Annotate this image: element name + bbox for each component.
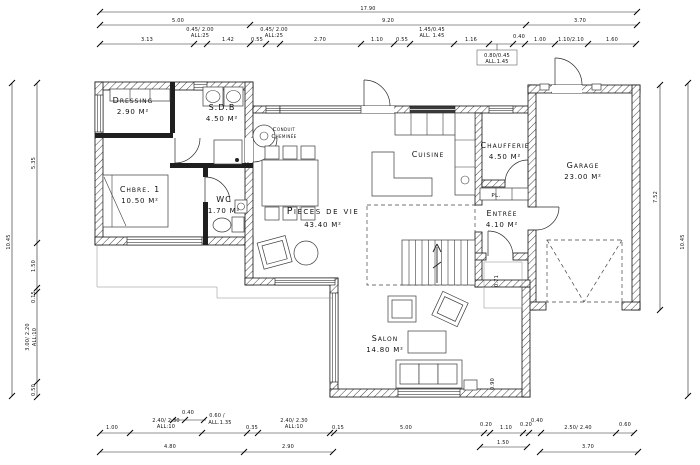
floor-plan-canvas: 17.905.009.203.703.130.45/ 2.00ALL:251.4… xyxy=(0,0,700,465)
dim-label: ALL:25 xyxy=(265,33,283,39)
dim-label: 0.40 xyxy=(182,410,194,416)
dim-label: 2.70 xyxy=(314,37,326,43)
room-label-conduit: Conduit xyxy=(273,127,296,133)
dim-label: 1.10/2.10 xyxy=(558,37,584,43)
dim-label: ALL:10 xyxy=(285,424,303,430)
coffee-table xyxy=(408,331,446,353)
dim-label: 0.15 xyxy=(332,425,344,431)
kitchen-cabinets-side xyxy=(455,113,475,195)
room-label-salon: 14.80 M² xyxy=(366,346,404,354)
window-salon-south xyxy=(398,389,460,397)
dim-label: 0.55 xyxy=(396,37,408,43)
dim-label: 0.15 xyxy=(31,291,37,303)
room-label-chaufferie: Chaufferie xyxy=(480,141,529,150)
kitchen-cabinets-top xyxy=(395,113,458,135)
dim-label: 4.80 xyxy=(164,444,176,450)
dim-label: 3.00/ 2.20 xyxy=(25,323,31,351)
room-label-salon: Salon xyxy=(372,334,399,343)
dim-label: 0.90 xyxy=(490,378,496,390)
window-dressing-west xyxy=(95,95,103,132)
room-label-dressing: Dressing xyxy=(113,96,154,105)
dim-label: 7.52 xyxy=(653,191,659,203)
room-label-entree: Entrée xyxy=(487,209,518,218)
window-living-north-band xyxy=(280,106,361,113)
dim-label: 5.35 xyxy=(31,157,37,169)
room-label-garage: 23.00 M² xyxy=(564,173,602,181)
dim-label: 0.60 / xyxy=(209,413,225,419)
window-chaufferie-north xyxy=(489,106,513,113)
living-side-table xyxy=(294,241,318,265)
dim-label: 5.00 xyxy=(172,18,184,24)
room-label-sdb: 4.50 M² xyxy=(206,115,238,123)
window-living-south xyxy=(275,278,335,285)
dim-label: 3.70 xyxy=(582,444,594,450)
dim-label: 2.90 xyxy=(282,444,294,450)
dim-label: 10.45 xyxy=(6,234,12,249)
room-label-entree: 4.10 M² xyxy=(486,221,518,229)
room-label-cuisine: Cuisine xyxy=(412,150,445,159)
room-label-pl: PL. xyxy=(491,193,500,199)
dim-label: 9.20 xyxy=(382,18,394,24)
placard xyxy=(480,188,528,200)
room-label-chbre-1: Chbre. 1 xyxy=(120,185,160,194)
dim-label: 1.10 xyxy=(371,37,383,43)
window-living-north-small xyxy=(266,106,280,113)
dim-label: 5.00 xyxy=(400,425,412,431)
floor-plan-drawing: 17.905.009.203.703.130.45/ 2.00ALL:251.4… xyxy=(0,0,700,465)
dim-label: 2.50/ 2.40 xyxy=(564,425,592,431)
dim-label: ALL.1.45 xyxy=(485,59,508,65)
dim-label: ALL:10 xyxy=(157,424,175,430)
dim-label: ALL:10 xyxy=(32,328,38,346)
room-label-pieces-de-vie: 43.40 M² xyxy=(304,221,342,229)
salon-side-box xyxy=(464,380,477,390)
room-label-dressing: 2.90 M² xyxy=(117,108,149,116)
dim-label: 1.16 xyxy=(465,37,477,43)
dim-label: 1.42 xyxy=(222,37,234,43)
dim-label: 17.90 xyxy=(360,6,375,12)
dim-label: 0.35 xyxy=(246,425,258,431)
room-label-garage: Garage xyxy=(567,161,600,170)
room-label-sdb: S.D.B xyxy=(209,103,236,112)
room-label-pieces-de-vie: Pièces de vie xyxy=(287,206,360,217)
dim-label: 0.50 xyxy=(31,384,37,396)
dim-label: 1.60 xyxy=(606,37,618,43)
dim-label: 0.71 xyxy=(494,275,500,287)
dim-label: 3.13 xyxy=(141,37,153,43)
dim-label: 0.55 xyxy=(251,37,263,43)
dim-label: 3.70 xyxy=(574,18,586,24)
dim-label: 0.20 xyxy=(480,422,492,428)
dim-label: 0.40 xyxy=(531,418,543,424)
shower xyxy=(214,140,242,164)
dim-label: 0.60 xyxy=(619,422,631,428)
room-label-wc: WC xyxy=(216,195,232,204)
room-label-chaufferie: 4.50 M² xyxy=(489,153,521,161)
dim-label: 10.45 xyxy=(680,234,686,249)
dim-label: ALL.1.35 xyxy=(208,420,231,426)
room-label-conduit: Cheminée xyxy=(271,134,296,140)
window-salon-west xyxy=(330,293,338,382)
window-kitchen-north xyxy=(410,106,455,113)
salon-armchair-1 xyxy=(388,296,416,322)
dim-label: 1.50 xyxy=(497,440,509,446)
room-label-wc: 1.70 M² xyxy=(208,207,240,215)
room-label-chbre-1: 10.50 M² xyxy=(121,197,159,205)
dim-label: 1.10 xyxy=(500,425,512,431)
dim-label: 1.00 xyxy=(534,37,546,43)
dim-label: 0.40 xyxy=(513,34,525,40)
sofa xyxy=(396,360,462,388)
dim-label: 1.00 xyxy=(106,425,118,431)
dim-label: ALL:25 xyxy=(191,33,209,39)
dim-label: 1.50 xyxy=(31,260,37,272)
window-chbre-south xyxy=(127,237,202,245)
dim-label: ALL. 1.45 xyxy=(419,33,444,39)
